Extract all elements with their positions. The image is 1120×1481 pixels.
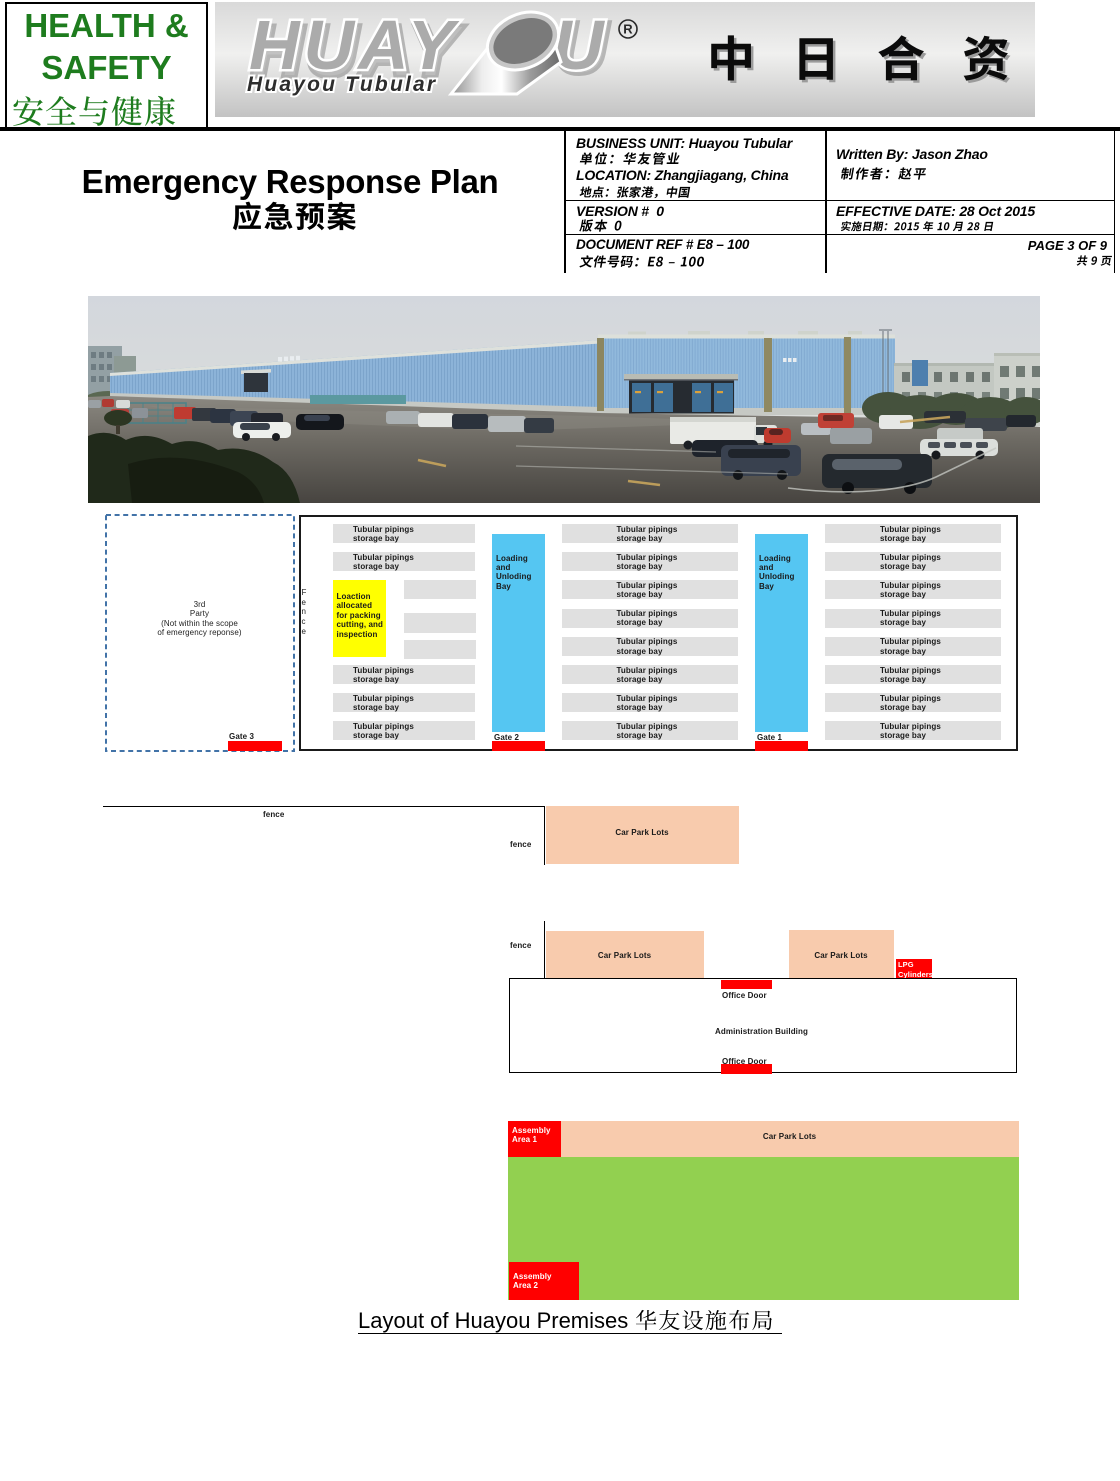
svg-text:R: R xyxy=(623,22,633,37)
svg-text:Huayou Tubular: Huayou Tubular xyxy=(247,73,437,96)
svg-text:U: U xyxy=(553,6,605,84)
